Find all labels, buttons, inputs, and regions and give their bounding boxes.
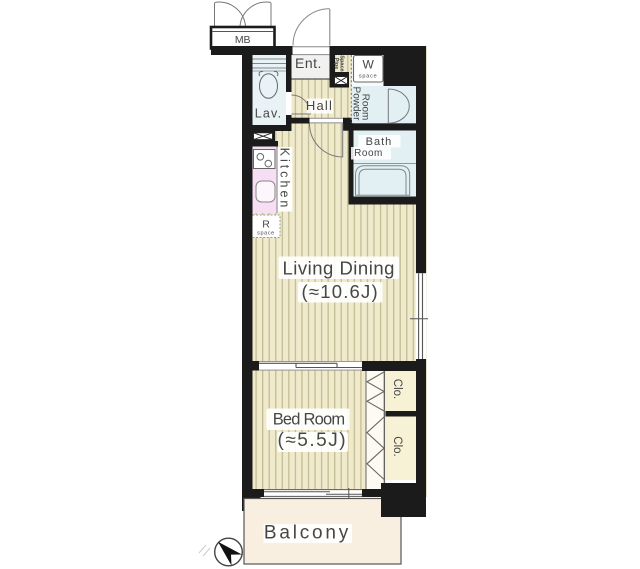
svg-text:Clo.: Clo.: [391, 379, 403, 399]
svg-text:Room: Room: [360, 94, 371, 121]
svg-text:Ent.: Ent.: [295, 55, 322, 71]
svg-text:Space: Space: [339, 55, 345, 71]
svg-text:Hall: Hall: [306, 98, 333, 113]
svg-text:(≈10.6J): (≈10.6J): [302, 281, 379, 302]
svg-text:Living Dining: Living Dining: [282, 257, 394, 278]
svg-text:space: space: [359, 74, 378, 80]
svg-text:Room: Room: [354, 148, 383, 159]
svg-text:Clo.: Clo.: [391, 436, 403, 456]
svg-text:(≈5.5J): (≈5.5J): [278, 430, 348, 451]
svg-text:space: space: [257, 231, 275, 237]
svg-text:Pipe: Pipe: [333, 58, 339, 70]
svg-text:MB: MB: [235, 34, 251, 46]
svg-text:Kitchen: Kitchen: [278, 148, 292, 211]
svg-text:Balcony: Balcony: [264, 523, 351, 544]
svg-text:W: W: [363, 58, 375, 72]
svg-text:Lav.: Lav.: [255, 107, 283, 121]
svg-text:Bed Room: Bed Room: [273, 410, 345, 428]
svg-text:R: R: [262, 219, 270, 231]
svg-text:Bath: Bath: [366, 136, 393, 148]
